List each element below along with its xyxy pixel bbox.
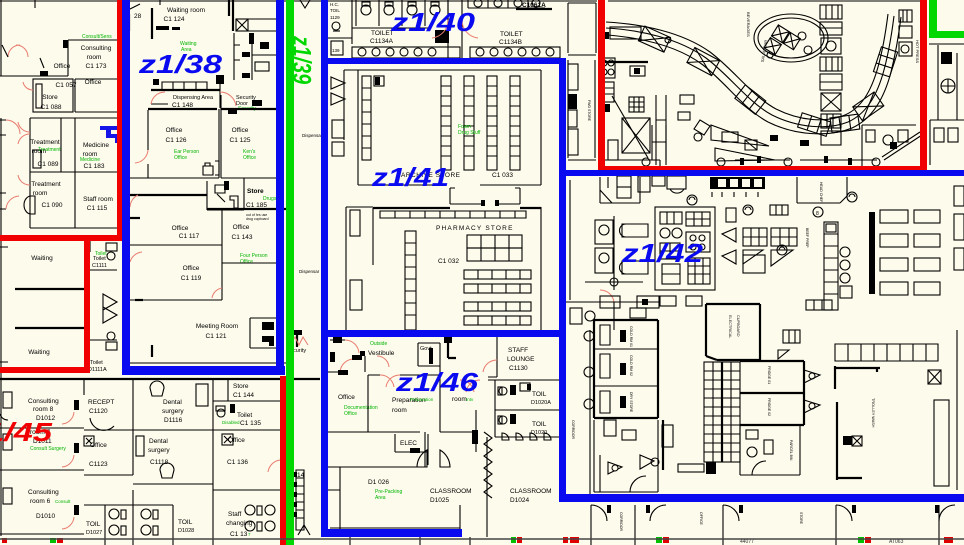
- svg-text:z1/40: z1/40: [390, 7, 476, 37]
- svg-text:Toilet: Toilet: [90, 360, 103, 366]
- svg-text:BEVERAGES: BEVERAGES: [746, 12, 751, 37]
- svg-text:z1/45: z1/45: [0, 417, 53, 447]
- svg-text:C1 090: C1 090: [42, 202, 63, 209]
- svg-text:C1 126: C1 126: [166, 137, 187, 144]
- svg-text:FWD STORE: FWD STORE: [587, 100, 591, 122]
- svg-text:CLASSROOM: CLASSROOM: [430, 488, 472, 495]
- svg-text:C1 13: C1 13: [230, 531, 248, 538]
- svg-text:C1 032: C1 032: [438, 258, 459, 265]
- svg-text:Staff: Staff: [228, 511, 241, 518]
- svg-text:STAFF: STAFF: [508, 347, 528, 354]
- svg-text:Office: Office: [85, 79, 102, 86]
- svg-text:Dispensar: Dispensar: [302, 133, 323, 138]
- svg-text:8: 8: [816, 211, 819, 217]
- svg-text:C1 124: C1 124: [164, 16, 185, 23]
- svg-text:C1 089: C1 089: [38, 161, 59, 168]
- svg-text:Preparation: Preparation: [410, 397, 434, 402]
- svg-text:C1 117: C1 117: [179, 233, 200, 240]
- svg-text:D1010: D1010: [36, 513, 56, 520]
- svg-text:D1024: D1024: [510, 497, 530, 504]
- svg-text:28: 28: [134, 13, 142, 20]
- svg-text:Consult/Sens: Consult/Sens: [82, 34, 112, 40]
- svg-text:C1 135: C1 135: [240, 420, 261, 427]
- svg-text:Drug Stuff: Drug Stuff: [458, 130, 481, 136]
- svg-text:TOIL: TOIL: [178, 519, 193, 526]
- svg-text:D1027: D1027: [86, 530, 102, 536]
- svg-text:drug cupboard: drug cupboard: [246, 217, 269, 221]
- svg-text:D1116: D1116: [164, 417, 183, 424]
- svg-text:Area: Area: [375, 495, 386, 501]
- svg-text:Outside: Outside: [370, 341, 387, 347]
- svg-text:Medicine: Medicine: [80, 157, 100, 163]
- svg-text:room 8: room 8: [33, 406, 54, 413]
- svg-text:Office: Office: [174, 155, 187, 161]
- svg-text:C1 057: C1 057: [56, 82, 77, 89]
- svg-text:surgery: surgery: [162, 408, 184, 415]
- svg-text:C1134A: C1134A: [370, 38, 394, 45]
- svg-text:Toilet: Toilet: [237, 412, 252, 419]
- svg-text:AT063: AT063: [889, 539, 904, 545]
- svg-text:44077: 44077: [740, 539, 754, 545]
- svg-text:C1 125: C1 125: [230, 137, 251, 144]
- svg-text:C1111: C1111: [92, 263, 107, 269]
- svg-text:C1 121: C1 121: [206, 333, 227, 340]
- svg-text:Waiting room: Waiting room: [167, 7, 205, 14]
- svg-text:C1118: C1118: [150, 459, 169, 466]
- svg-text:Vestibule: Vestibule: [368, 350, 395, 357]
- svg-text:C1 143: C1 143: [232, 234, 253, 241]
- svg-text:z1/38: z1/38: [138, 49, 223, 79]
- svg-text:Office: Office: [54, 63, 71, 70]
- svg-text:D1111A: D1111A: [88, 367, 107, 373]
- svg-text:TROLLEY WASH: TROLLEY WASH: [871, 398, 875, 428]
- svg-text:Treatment: Treatment: [31, 181, 61, 188]
- svg-text:HEAD CHEF: HEAD CHEF: [819, 182, 823, 202]
- svg-text:TOIL: TOIL: [86, 521, 101, 528]
- svg-text:Dental: Dental: [149, 438, 168, 445]
- svg-text:Office: Office: [338, 394, 355, 401]
- svg-text:BEEF PREP: BEEF PREP: [805, 228, 809, 248]
- svg-text:Office: Office: [172, 225, 189, 232]
- svg-text:Dental: Dental: [163, 399, 182, 406]
- svg-text:139: 139: [332, 48, 340, 53]
- svg-text:Office: Office: [228, 437, 245, 444]
- svg-text:Office: Office: [240, 259, 253, 265]
- svg-text:H.C.: H.C.: [330, 2, 339, 7]
- svg-text:PHARMACY STORE: PHARMACY STORE: [436, 225, 514, 232]
- svg-text:C1120: C1120: [89, 408, 108, 415]
- svg-text:Store: Store: [42, 94, 58, 101]
- svg-text:COLD RM 01: COLD RM 01: [629, 326, 633, 347]
- svg-text:Waiting: Waiting: [31, 255, 53, 262]
- svg-text:D1020A: D1020A: [531, 400, 551, 406]
- svg-text:Treatment: Treatment: [38, 147, 61, 153]
- svg-text:D1 026: D1 026: [368, 479, 389, 486]
- svg-text:TOILET: TOILET: [500, 31, 523, 38]
- svg-text:room: room: [452, 396, 467, 403]
- svg-text:Consulting: Consulting: [28, 489, 59, 496]
- svg-text:ELECTRICAL: ELECTRICAL: [728, 315, 732, 338]
- svg-text:Waiting: Waiting: [28, 349, 50, 356]
- svg-text:CORRIDOR: CORRIDOR: [619, 512, 623, 532]
- svg-text:TOIL: TOIL: [532, 421, 547, 428]
- svg-text:C1 115: C1 115: [87, 205, 108, 212]
- svg-text:14: 14: [297, 472, 305, 479]
- svg-text:Store: Store: [233, 383, 249, 390]
- svg-text:C1134B: C1134B: [499, 39, 522, 46]
- svg-text:C1 136: C1 136: [227, 459, 248, 466]
- svg-text:HOT PRESS: HOT PRESS: [915, 40, 920, 63]
- svg-text:CORRIDOR: CORRIDOR: [571, 420, 575, 440]
- svg-text:C1 183: C1 183: [84, 163, 105, 170]
- svg-text:z1/46: z1/46: [395, 367, 479, 397]
- svg-text:Intv: Intv: [466, 397, 474, 402]
- svg-text:Office: Office: [166, 127, 183, 134]
- svg-text:D1028: D1028: [178, 528, 194, 534]
- svg-text:C1 033: C1 033: [492, 172, 513, 179]
- svg-text:Office: Office: [243, 155, 256, 161]
- svg-text:curity: curity: [293, 348, 306, 354]
- svg-text:C1 144: C1 144: [233, 392, 254, 399]
- svg-text:CUPBOARD: CUPBOARD: [736, 315, 740, 337]
- svg-text:DRY STORE: DRY STORE: [629, 392, 633, 413]
- svg-text:Treatment: Treatment: [30, 139, 60, 146]
- svg-text:Consult: Consult: [55, 499, 71, 504]
- svg-text:RECEPT: RECEPT: [88, 399, 114, 406]
- svg-text:CLASSROOM: CLASSROOM: [510, 488, 552, 495]
- svg-text:C1123: C1123: [89, 461, 108, 468]
- svg-text:C1130: C1130: [509, 365, 528, 372]
- svg-text:surgery: surgery: [148, 447, 170, 454]
- svg-text:z1/39: z1/39: [287, 35, 317, 84]
- svg-text:room: room: [87, 54, 102, 61]
- svg-text:Medicine: Medicine: [83, 142, 109, 149]
- svg-text:room 6: room 6: [30, 498, 51, 505]
- svg-text:LOUNGE: LOUNGE: [507, 356, 535, 363]
- svg-text:TOIL: TOIL: [532, 391, 547, 398]
- svg-text:Consulting: Consulting: [28, 398, 59, 405]
- svg-text:TOIL: TOIL: [330, 8, 340, 13]
- svg-text:FRIDGE 01: FRIDGE 01: [767, 366, 771, 384]
- svg-text:PARCEL BIN: PARCEL BIN: [789, 440, 793, 461]
- svg-text:Dispensing Area: Dispensing Area: [173, 95, 214, 101]
- svg-text:Disabled: Disabled: [222, 420, 240, 425]
- svg-text:C1 173: C1 173: [86, 63, 107, 70]
- svg-text:Office: Office: [232, 127, 249, 134]
- svg-text:FRIDGE 02: FRIDGE 02: [767, 398, 771, 416]
- svg-text:Office: Office: [344, 411, 357, 417]
- svg-text:Staff room: Staff room: [83, 196, 113, 203]
- svg-text:ELEC: ELEC: [400, 440, 417, 447]
- svg-text:z1/41: z1/41: [371, 162, 449, 192]
- svg-text:room: room: [392, 407, 407, 414]
- svg-text:Toilet: Toilet: [95, 251, 107, 257]
- svg-text:z1/42: z1/42: [621, 238, 704, 268]
- svg-text:D1025: D1025: [430, 497, 450, 504]
- svg-text:C1 088: C1 088: [41, 104, 62, 111]
- svg-text:Store: Store: [247, 188, 264, 195]
- svg-text:Dispensar: Dispensar: [299, 269, 320, 274]
- svg-text:1129: 1129: [330, 15, 340, 20]
- svg-text:OFFICE: OFFICE: [699, 512, 703, 525]
- svg-text:Consulting: Consulting: [81, 45, 112, 52]
- svg-text:Office: Office: [183, 265, 200, 272]
- svg-text:C1 119: C1 119: [181, 275, 202, 282]
- svg-text:STORE: STORE: [799, 512, 803, 525]
- svg-text:COLD RM 02: COLD RM 02: [629, 355, 633, 376]
- svg-text:Office: Office: [233, 224, 250, 231]
- svg-text:Meeting Room: Meeting Room: [196, 323, 238, 330]
